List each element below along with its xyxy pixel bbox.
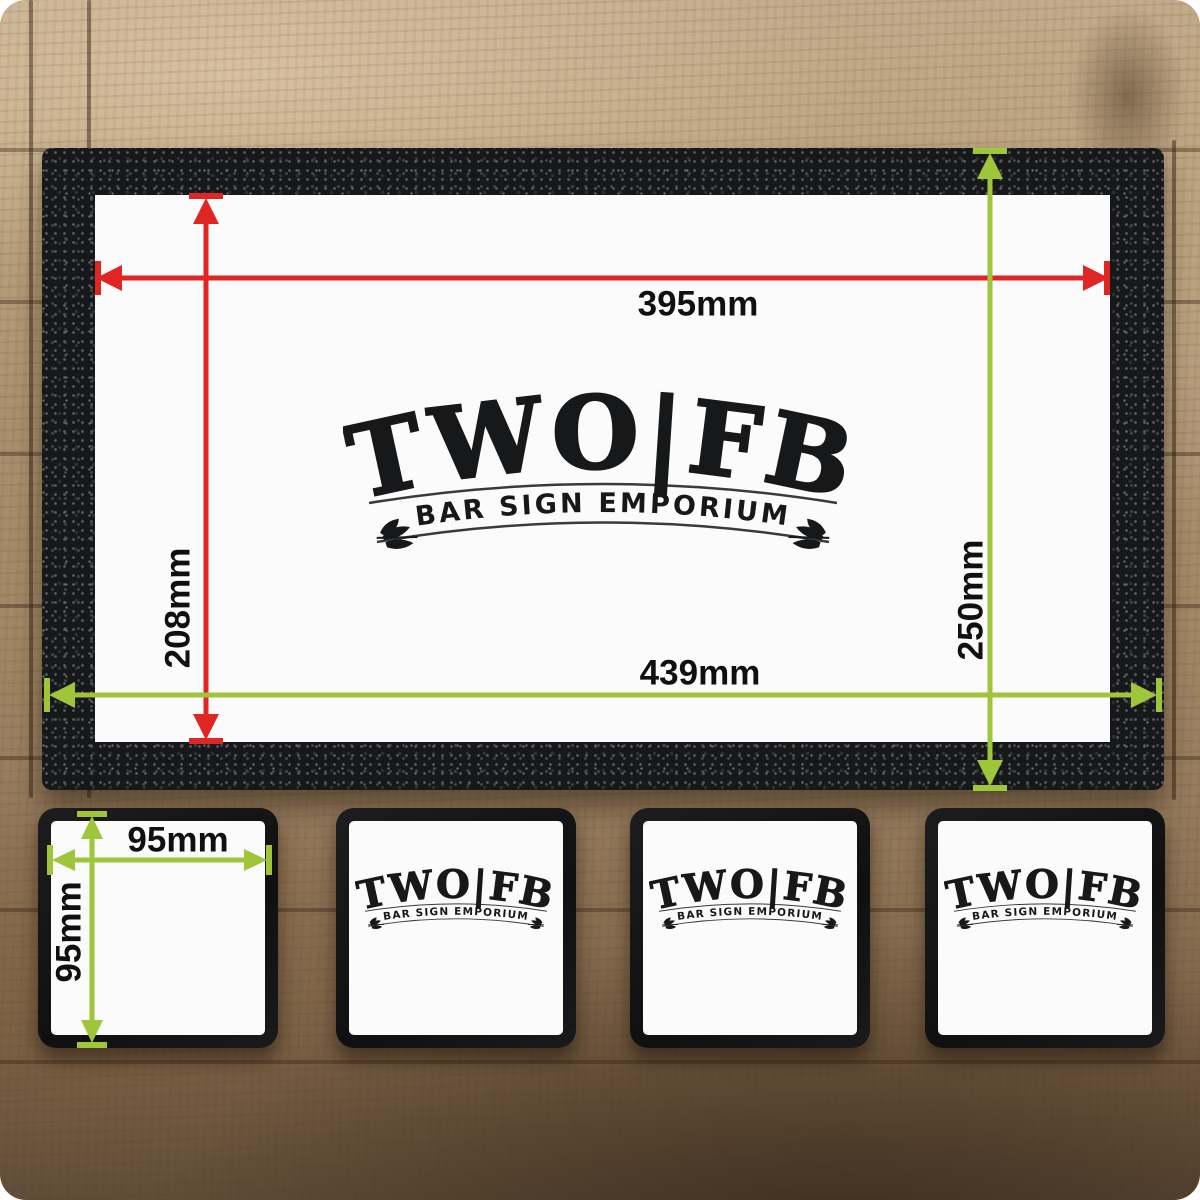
coaster-logo-2: TWO|FB BAR SIGN EMPORIUM: [630, 808, 870, 1048]
coaster-print-area: TWO|FB BAR SIGN EMPORIUM: [938, 821, 1152, 1035]
leaf-ornament-right: [527, 916, 544, 930]
product-photo: TWO|FB BAR SIGN EMPORIUM TWO|FB BAR SIGN…: [0, 0, 1200, 1200]
coaster-logo-1: TWO|FB BAR SIGN EMPORIUM: [336, 808, 576, 1048]
leaf-ornament-left: [368, 916, 385, 930]
leaf-ornament-left: [375, 516, 419, 552]
wood-plank-seam: [1172, 140, 1176, 800]
twofb-logo-small: TWO|FB BAR SIGN EMPORIUM: [355, 863, 557, 935]
dim-label-coaster-height: 95mm: [52, 881, 87, 982]
twofb-logo-small: TWO|FB BAR SIGN EMPORIUM: [649, 863, 851, 935]
leaf-ornament-left: [957, 916, 974, 930]
dim-label-overall-height: 250mm: [954, 540, 989, 661]
bar-runner-mat: TWO|FB BAR SIGN EMPORIUM: [42, 148, 1164, 790]
coaster-print-area: TWO|FB BAR SIGN EMPORIUM: [349, 821, 563, 1035]
leaf-ornament-right: [786, 516, 830, 552]
leaf-ornament-left: [662, 916, 679, 930]
twofb-logo-small: TWO|FB BAR SIGN EMPORIUM: [944, 863, 1146, 935]
dim-label-print-height: 208mm: [161, 548, 196, 669]
leaf-ornament-right: [821, 916, 838, 930]
coaster-print-area: TWO|FB BAR SIGN EMPORIUM: [643, 821, 857, 1035]
leaf-ornament-right: [1116, 916, 1133, 930]
coaster-logo-3: TWO|FB BAR SIGN EMPORIUM: [925, 808, 1165, 1048]
dim-label-coaster-width: 95mm: [127, 823, 228, 858]
wood-plank-seam: [29, 0, 33, 798]
twofb-logo: TWO|FB BAR SIGN EMPORIUM: [343, 379, 863, 564]
dim-label-overall-width: 439mm: [640, 656, 761, 691]
dim-label-print-width: 395mm: [638, 287, 759, 322]
